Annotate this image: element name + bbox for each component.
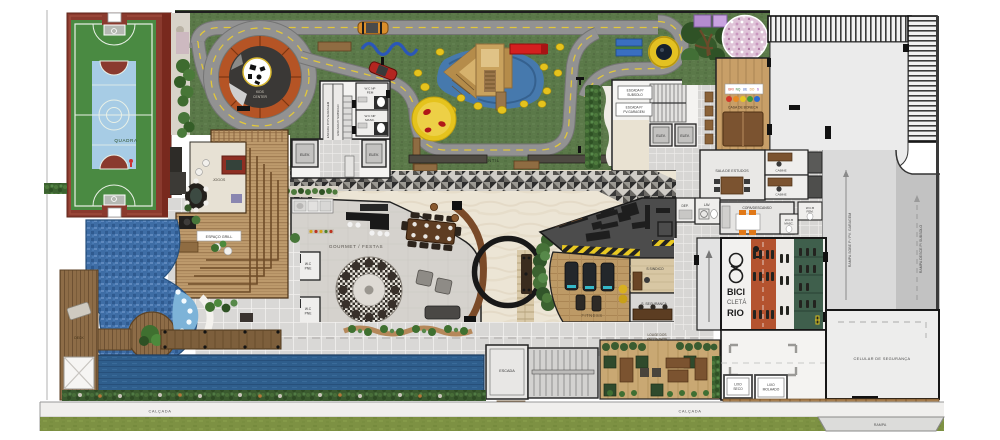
svg-text:GOURMET / FESTAS: GOURMET / FESTAS <box>329 244 383 249</box>
svg-text:NQ: NQ <box>736 88 741 92</box>
svg-text:ESCADA P/ SUBSOLO: ESCADA P/ SUBSOLO <box>336 104 340 136</box>
svg-text:ELEV.: ELEV. <box>656 134 665 138</box>
svg-text:LOUGE DOS: LOUGE DOS <box>648 333 667 337</box>
svg-text:COPA/DESCANSO: COPA/DESCANSO <box>742 206 772 210</box>
svg-text:DEP.: DEP. <box>681 204 688 208</box>
svg-text:BICI: BICI <box>727 287 745 297</box>
svg-text:S SINDICO: S SINDICO <box>646 267 664 271</box>
svg-text:LAV.: LAV. <box>704 203 711 207</box>
svg-text:DO: DO <box>750 88 755 92</box>
svg-text:ESCADA P/: ESCADA P/ <box>626 106 643 110</box>
svg-text:LIXO: LIXO <box>767 383 775 387</box>
svg-text:LIXO: LIXO <box>734 383 742 387</box>
svg-text:SECO: SECO <box>733 387 743 391</box>
svg-text:RAMPA: RAMPA <box>874 423 887 427</box>
svg-text:ESPAÇO GRILL: ESPAÇO GRILL <box>206 235 233 239</box>
svg-text:RIO: RIO <box>727 308 744 319</box>
svg-text:CABINE: CABINE <box>775 169 786 173</box>
svg-text:MASC.: MASC. <box>784 222 793 226</box>
svg-text:ESCADA P/ PV.GARAGEM: ESCADA P/ PV.GARAGEM <box>326 101 330 138</box>
svg-text:W.C: W.C <box>305 262 312 266</box>
svg-text:CELULAR DE SEGURANÇA: CELULAR DE SEGURANÇA <box>854 357 911 361</box>
svg-text:CABINE: CABINE <box>775 193 786 197</box>
svg-text:UE: UE <box>743 88 747 92</box>
svg-text:CALÇADA: CALÇADA <box>678 409 701 414</box>
svg-text:ESCADA: ESCADA <box>499 369 515 373</box>
svg-text:CLETÁ: CLETÁ <box>727 299 746 306</box>
svg-text:ELEV.: ELEV. <box>369 153 379 157</box>
svg-text:PNE: PNE <box>305 267 313 271</box>
svg-text:SALA DE ESTUDOS: SALA DE ESTUDOS <box>715 169 749 173</box>
svg-text:W.C: W.C <box>305 307 312 311</box>
svg-text:MOLHADO: MOLHADO <box>763 388 780 392</box>
svg-text:PNE: PNE <box>305 312 313 316</box>
svg-text:QUADRA: QUADRA <box>114 138 138 143</box>
svg-text:PV.GARAGEM: PV.GARAGEM <box>623 110 644 114</box>
svg-text:ELEV.: ELEV. <box>300 153 310 157</box>
svg-text:S: S <box>757 88 759 92</box>
svg-text:CENTER: CENTER <box>253 95 267 99</box>
svg-text:BRI: BRI <box>728 88 733 92</box>
svg-text:FEM: FEM <box>367 91 374 95</box>
svg-text:CASA DE BONECA: CASA DE BONECA <box>728 106 759 110</box>
svg-text:RAMPA DESCE P/ SUBSOLO: RAMPA DESCE P/ SUBSOLO <box>919 225 923 274</box>
svg-text:SUBSOLO: SUBSOLO <box>627 93 643 97</box>
svg-text:CALÇADA: CALÇADA <box>148 409 171 414</box>
svg-text:ELEV.: ELEV. <box>680 134 689 138</box>
svg-text:FITNESS: FITNESS <box>581 313 602 318</box>
svg-text:RAMPA SOBE P / PV. GARAGEM: RAMPA SOBE P / PV. GARAGEM <box>848 213 852 267</box>
svg-text:MASC.: MASC. <box>365 118 375 122</box>
svg-text:ENCONTROS: ENCONTROS <box>647 337 667 341</box>
svg-text:KIDS: KIDS <box>256 90 265 94</box>
svg-text:ESCADA P/: ESCADA P/ <box>627 89 644 93</box>
svg-text:DECK: DECK <box>74 336 84 340</box>
svg-text:JOGOS: JOGOS <box>213 178 226 182</box>
